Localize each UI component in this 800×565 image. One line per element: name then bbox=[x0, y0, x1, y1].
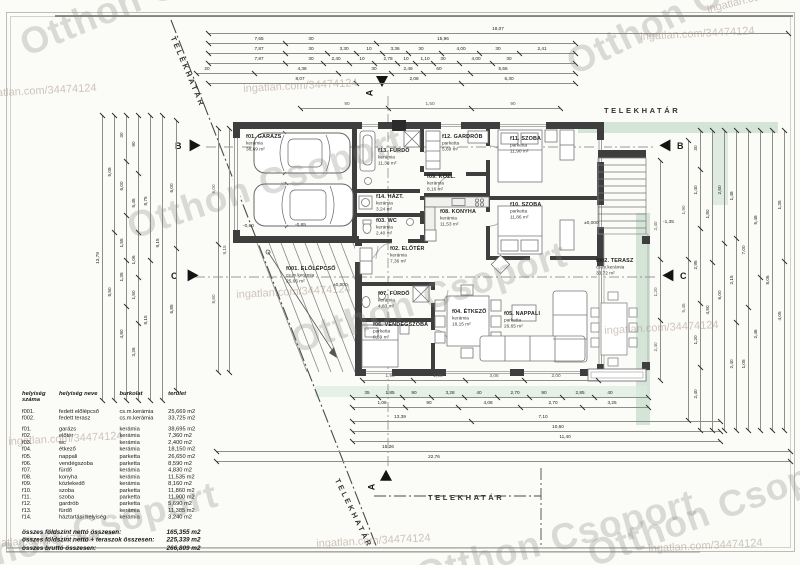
dimension-value: 1,50 bbox=[425, 101, 434, 106]
dimension-chain bbox=[126, 115, 127, 400]
dimension-value: 4,38 bbox=[298, 66, 307, 71]
dimension-value: 10 bbox=[360, 56, 365, 61]
dimension-tick bbox=[733, 428, 739, 434]
dimension-value: 1,35 bbox=[778, 200, 783, 209]
room-label: f05. NAPPALIparketta26,65 m² bbox=[504, 311, 540, 330]
area-table-row: f001.fedett előlépcsőcs.m.kerámia25,669 … bbox=[22, 409, 214, 416]
dimension-chain bbox=[216, 461, 790, 462]
total-net-terrace-value: 225,339 m2 bbox=[166, 536, 213, 544]
section-marker-arrow bbox=[376, 76, 388, 87]
dimension-chain bbox=[760, 130, 761, 430]
dimension-tick bbox=[757, 428, 763, 434]
dimension-tick bbox=[297, 106, 303, 112]
dimension-tick bbox=[205, 41, 211, 47]
dimension-chain bbox=[114, 115, 115, 400]
area-table-row: f002.fedett teraszcs.m.kerámia33,725 m2 bbox=[22, 415, 214, 422]
dimension-value: 6,85 bbox=[170, 304, 175, 313]
dimension-chain bbox=[724, 130, 725, 430]
dimension-tick bbox=[213, 449, 219, 455]
dimension-value: 15,96 bbox=[437, 36, 449, 41]
dimension-value: 2,78 bbox=[383, 56, 392, 61]
dimension-value: 1,55 bbox=[120, 239, 125, 248]
dimension-value: 9,15 bbox=[223, 245, 228, 254]
dimension-value: 4,05 bbox=[778, 311, 783, 320]
room-label: f001. ELŐLÉPCSŐcs.m.kerámia25,66 m² bbox=[286, 266, 336, 285]
dimension-value: 30 bbox=[418, 46, 423, 51]
dimension-value: 22,76 bbox=[428, 454, 440, 459]
room-label: f08. KONYHAkerámia11,53 m² bbox=[440, 209, 476, 228]
level-annotation: -0,60 bbox=[243, 224, 254, 229]
dimension-value: 2,40 bbox=[730, 359, 735, 368]
area-table-row: f14.háztartási helyiségkerámia3,240 m2 bbox=[22, 515, 214, 522]
dimension-value: 1,80 bbox=[706, 209, 711, 218]
dimension-value: 5,45 bbox=[682, 303, 687, 312]
dimension-value: 60 bbox=[436, 66, 441, 71]
dimension-chain bbox=[352, 397, 648, 398]
area-table-row: f12.gardróbparketta5,690 m2 bbox=[22, 501, 214, 508]
dimension-tick bbox=[745, 428, 751, 434]
dimension-value: 2,50 bbox=[718, 185, 723, 194]
dimension-value: 10 bbox=[367, 46, 372, 51]
dimension-value: 30 bbox=[308, 56, 313, 61]
dimension-value: 2,40 bbox=[654, 342, 659, 351]
area-table-row: f09.közlekedőkerámia8,160 m2 bbox=[22, 481, 214, 488]
dimension-value: 5,48 bbox=[754, 215, 759, 224]
dimension-value: 35 bbox=[364, 390, 369, 395]
dimension-chain bbox=[700, 130, 701, 430]
watermark-listing: ingatlan.com/34474124 bbox=[604, 319, 719, 337]
dimension-value: 2,15 bbox=[730, 275, 735, 284]
section-marker-arrow bbox=[188, 269, 199, 281]
section-marker-letter: A bbox=[366, 484, 376, 491]
dimension-value: 2,70 bbox=[549, 400, 558, 405]
dimension-chain bbox=[352, 421, 720, 422]
total-net-terrace-label: összes földszint nettó + teraszok összes… bbox=[22, 536, 166, 544]
dimension-chain bbox=[712, 130, 713, 430]
room-label: f12. GARDRÓBparketta5,69 m² bbox=[442, 134, 483, 153]
dimension-value: 1,06 bbox=[132, 256, 137, 265]
dimension-value: 20 bbox=[205, 66, 210, 71]
dimension-value: 2,49 bbox=[404, 66, 413, 71]
dimension-value: 5,08 bbox=[108, 167, 113, 176]
dimension-value: 1,90 bbox=[682, 205, 687, 214]
dimension-value: 2,00 bbox=[433, 373, 442, 378]
dimension-value: 13,79 bbox=[96, 252, 101, 264]
dimension-tick bbox=[213, 459, 219, 465]
room-area-table: helyiség száma helyiség neve burkolat te… bbox=[22, 391, 214, 552]
dimension-value: 30 bbox=[308, 36, 313, 41]
total-net-label: összes földszint nettó összesen: bbox=[22, 528, 166, 536]
dimension-tick bbox=[349, 405, 355, 411]
room-label: f11. SZOBAparketta11,90 m² bbox=[510, 136, 541, 155]
room-label: f03. WCkerámia2,40 m² bbox=[376, 218, 397, 237]
dimension-value: 13,39 bbox=[394, 414, 406, 419]
dimension-chain bbox=[660, 160, 661, 380]
watermark-listing: ingatlan.com/34474124 bbox=[316, 532, 431, 550]
dimension-value: 4,00 bbox=[471, 56, 480, 61]
area-table-row: f07.fürdőkerámia4,830 m2 bbox=[22, 467, 214, 474]
dimension-value: 90 bbox=[542, 390, 547, 395]
dimension-value: 2,08 bbox=[409, 76, 418, 81]
dimension-chain bbox=[352, 407, 648, 408]
col-area: terület bbox=[168, 391, 213, 403]
dimension-value: 1,50 bbox=[132, 290, 137, 299]
area-table-row: f02.előtérkerámia7,360 m2 bbox=[22, 433, 214, 440]
area-table-row: f04.étkezőkerámia18,150 m2 bbox=[22, 447, 214, 454]
dimension-chain bbox=[352, 441, 720, 442]
dimension-tick bbox=[349, 439, 355, 445]
watermark-brand: Otthon Csoport bbox=[286, 233, 572, 362]
dimension-value: 18,07 bbox=[492, 26, 504, 31]
section-marker-arrow bbox=[659, 139, 670, 151]
level-annotation: ±0,000 bbox=[584, 221, 599, 226]
col-room-number: helyiség száma bbox=[22, 391, 59, 403]
dimension-value: 2,40 bbox=[694, 389, 699, 398]
dimension-value: 7,87 bbox=[255, 56, 264, 61]
dimension-value: 5,56 bbox=[498, 66, 507, 71]
plot-boundary-label: TELEKHATÁR bbox=[169, 35, 207, 109]
dimension-tick bbox=[769, 428, 775, 434]
room-label: f04. ÉTKEZŐkerámia18,15 m² bbox=[452, 309, 487, 328]
watermark-brand: Otthon Csoport bbox=[560, 0, 800, 84]
dimension-tick bbox=[349, 419, 355, 425]
dimension-value: 4,08 bbox=[484, 400, 493, 405]
dimension-chain bbox=[772, 130, 773, 430]
dimension-chain bbox=[162, 115, 163, 400]
dimension-tick bbox=[205, 81, 211, 87]
dimension-tick bbox=[205, 61, 211, 67]
dimension-chain bbox=[102, 115, 103, 400]
dimension-tick bbox=[205, 31, 211, 37]
dimension-chain bbox=[176, 120, 177, 390]
dimension-chain bbox=[208, 43, 575, 44]
section-marker-letter: C bbox=[680, 271, 687, 281]
watermark-listing: ingatlan.com/34474124 bbox=[243, 77, 358, 95]
area-totals: összes földszint nettó összesen: 165,355… bbox=[22, 528, 214, 552]
dimension-value: 3,28 bbox=[445, 390, 454, 395]
dimension-value: 1,48 bbox=[730, 191, 735, 200]
level-annotation: -0,65 bbox=[295, 223, 306, 228]
dimension-chain bbox=[352, 431, 720, 432]
dimension-value: 30 bbox=[372, 66, 377, 71]
dimension-value: 2,85 bbox=[575, 390, 584, 395]
dimension-value: 3,30 bbox=[339, 46, 348, 51]
dimension-value: 6,30 bbox=[504, 76, 513, 81]
watermark-listing: ingatlan.com/34474124 bbox=[0, 82, 97, 100]
dimension-value: 90 bbox=[132, 141, 137, 146]
dimension-value: 40 bbox=[607, 390, 612, 395]
dimension-value: 1,10 bbox=[420, 56, 429, 61]
dimension-value: 2,41 bbox=[537, 46, 546, 51]
section-marker-arrow bbox=[190, 139, 201, 151]
room-label: f14. HÁZT.kerámia3,24 m² bbox=[376, 194, 404, 213]
area-table-row: f01.garázskerámia38,695 m2 bbox=[22, 426, 214, 433]
dimension-value: 7,65 bbox=[255, 36, 264, 41]
dimension-value: 30 bbox=[694, 145, 699, 150]
dimension-value: 1,20 bbox=[654, 287, 659, 296]
area-table-header: helyiség száma helyiség neve burkolat te… bbox=[22, 391, 214, 403]
dimension-chain bbox=[688, 140, 689, 420]
area-table-row: f13.fürdőkerámia11,385 m2 bbox=[22, 508, 214, 515]
dimension-tick bbox=[657, 378, 663, 384]
dimension-chain bbox=[300, 108, 560, 109]
dimension-value: 4,00 bbox=[457, 46, 466, 51]
total-gross-value: 266,809 m2 bbox=[166, 544, 213, 552]
dimension-value: 30 bbox=[506, 56, 511, 61]
dimension-value: 2,40 bbox=[654, 221, 659, 230]
dimension-value: 8,50 bbox=[108, 287, 113, 296]
dimension-value: 1,35 bbox=[120, 273, 125, 282]
dimension-value: 2,70 bbox=[510, 390, 519, 395]
level-annotation: -1,35 bbox=[663, 220, 674, 225]
dimension-tick bbox=[359, 378, 365, 384]
dimension-value: 8,15 bbox=[144, 316, 149, 325]
dimension-tick bbox=[205, 51, 211, 57]
dimension-value: 1,90 bbox=[386, 373, 395, 378]
dimension-value: 8,60 bbox=[212, 294, 217, 303]
dimension-value: 11,40 bbox=[560, 434, 571, 439]
room-label: f10. SZOBAparketta11,86 m² bbox=[510, 202, 541, 221]
area-table-row: f05.nappaliparketta26,650 m2 bbox=[22, 454, 214, 461]
dimension-value: 90 bbox=[344, 101, 349, 106]
dimension-value: 3,26 bbox=[132, 347, 137, 356]
dimension-value: 90 bbox=[511, 101, 516, 106]
dimension-value: 10,60 bbox=[552, 424, 564, 429]
dimension-value: 6,00 bbox=[718, 290, 723, 299]
area-table-row: f11.szobaparketta11,900 m2 bbox=[22, 494, 214, 501]
dimension-value: 2,95 bbox=[694, 260, 699, 269]
dimension-value: 1,85 bbox=[386, 390, 395, 395]
area-table-row: f06.vendégszobaparketta8,590 m2 bbox=[22, 460, 214, 467]
dimension-value: 30 bbox=[440, 56, 445, 61]
dimension-value: 30 bbox=[308, 46, 313, 51]
dimension-tick bbox=[349, 395, 355, 401]
dimension-value: 30 bbox=[120, 132, 125, 137]
dimension-chain bbox=[138, 115, 139, 400]
dimension-chain bbox=[218, 128, 219, 372]
area-table-rows: f001.fedett előlépcsőcs.m.kerámia25,669 … bbox=[22, 409, 214, 522]
dimension-value: 90 bbox=[426, 400, 431, 405]
dimension-tick bbox=[349, 429, 355, 435]
section-marker-arrow bbox=[662, 269, 673, 281]
watermark-listing: ingatlan.com/34474124 bbox=[236, 283, 351, 301]
col-flooring: burkolat bbox=[119, 391, 168, 403]
dimension-value: 1,40 bbox=[694, 185, 699, 194]
dimension-value: 10 bbox=[404, 56, 409, 61]
total-net-value: 165,355 m2 bbox=[166, 528, 213, 536]
dimension-value: 1,05 bbox=[742, 359, 747, 368]
dimension-value: 3,36 bbox=[391, 46, 400, 51]
area-table-row: f08.konyhakerámia11,535 m2 bbox=[22, 474, 214, 481]
dimension-chain bbox=[150, 115, 151, 400]
plot-boundary-label: TELEKHATÁR bbox=[604, 106, 680, 115]
dimension-value: 7,10 bbox=[539, 414, 548, 419]
dimension-value: 2,40 bbox=[332, 56, 341, 61]
dimension-chain bbox=[784, 130, 785, 430]
area-table-row: f03.wckerámia2,400 m2 bbox=[22, 440, 214, 447]
col-room-name: helyiség neve bbox=[59, 391, 119, 403]
dimension-chain bbox=[229, 128, 230, 372]
dimension-tick bbox=[226, 370, 232, 376]
dimension-tick bbox=[781, 428, 787, 434]
total-gross-label: összes bruttó összesen: bbox=[22, 544, 166, 552]
dimension-value: 3,06 bbox=[490, 373, 499, 378]
section-marker-letter: B bbox=[677, 141, 684, 151]
floorplan-sheet: f01. GARÁZSkerámia38,69 m²f13. FÜRDŐkerá… bbox=[0, 0, 800, 565]
dimension-chain bbox=[748, 130, 749, 430]
dimension-value: 2,00 bbox=[551, 373, 560, 378]
dimension-chain bbox=[208, 63, 575, 64]
section-marker-arrow bbox=[380, 470, 392, 481]
dimension-value: 7,00 bbox=[742, 245, 747, 254]
area-table-row: f10.szobaparketta11,860 m2 bbox=[22, 488, 214, 495]
dimension-chain bbox=[362, 380, 598, 381]
room-label: f09. KÖZL.kerámia8,16 m² bbox=[427, 174, 456, 193]
dimension-chain bbox=[736, 130, 737, 430]
dimension-value: 15,26 bbox=[382, 444, 394, 449]
plot-boundary-label: TELEKHATÁR bbox=[428, 493, 504, 502]
dimension-value: 2,46 bbox=[754, 329, 759, 338]
section-marker-letter: A bbox=[364, 90, 374, 97]
dimension-value: 1,20 bbox=[694, 335, 699, 344]
dimension-value: 3,25 bbox=[608, 400, 617, 405]
dimension-value: 8,06 bbox=[766, 275, 771, 284]
dimension-tick bbox=[215, 370, 221, 376]
dimension-value: 4,50 bbox=[706, 305, 711, 314]
dimension-chain bbox=[216, 451, 790, 452]
room-label: f02. ELŐTÉRkerámia7,36 m² bbox=[390, 246, 425, 265]
dimension-value: 1,06 bbox=[377, 400, 386, 405]
room-label: f002. TERASZcs.m.kerámia33,72 m² bbox=[596, 258, 633, 277]
dimension-value: 90 bbox=[412, 390, 417, 395]
dimension-value: 7,87 bbox=[255, 46, 264, 51]
room-label: f01. GARÁZSkerámia38,69 m² bbox=[246, 134, 281, 153]
dimension-value: 30 bbox=[495, 46, 500, 51]
dimension-value: 4,80 bbox=[120, 330, 125, 339]
dimension-value: 6,00 bbox=[120, 182, 125, 191]
dimension-value: 40 bbox=[477, 390, 482, 395]
